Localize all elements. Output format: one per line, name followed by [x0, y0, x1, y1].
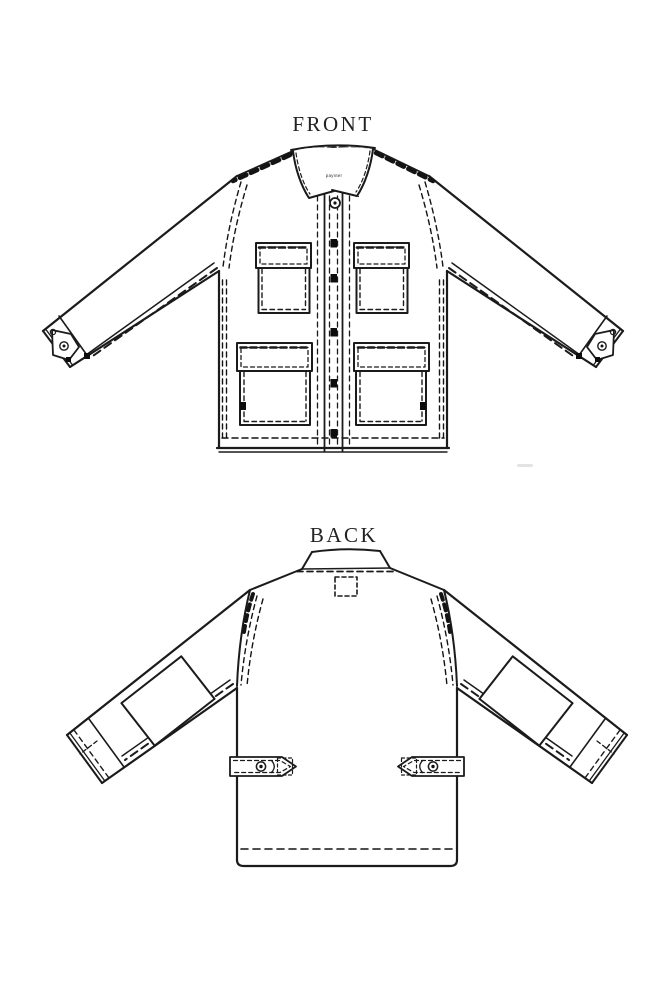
- back-view: BACK: [67, 523, 627, 866]
- back-view-title: BACK: [310, 523, 378, 547]
- bartack: [84, 353, 90, 359]
- right-chest-pocket: [354, 243, 409, 313]
- left-waist-tab: [230, 757, 296, 776]
- back-body-fill: [237, 566, 457, 866]
- right-lower-pocket: [354, 343, 429, 425]
- right-waist-tab: [398, 757, 464, 776]
- left-lower-pocket: [237, 343, 312, 425]
- brand-label-text: paynter: [326, 173, 343, 178]
- front-jacket-drawing: [43, 145, 623, 452]
- front-view: FRONT: [43, 112, 623, 467]
- bartack: [576, 353, 582, 359]
- bartack: [420, 402, 426, 410]
- scan-artifact: [517, 464, 533, 467]
- front-view-title: FRONT: [292, 112, 373, 136]
- back-jacket-drawing: [67, 549, 627, 866]
- left-chest-pocket: [256, 243, 311, 313]
- bartack: [595, 357, 600, 362]
- technical-drawing-page: FRONT: [0, 0, 666, 1000]
- bartack: [66, 357, 71, 362]
- bartack: [240, 402, 246, 410]
